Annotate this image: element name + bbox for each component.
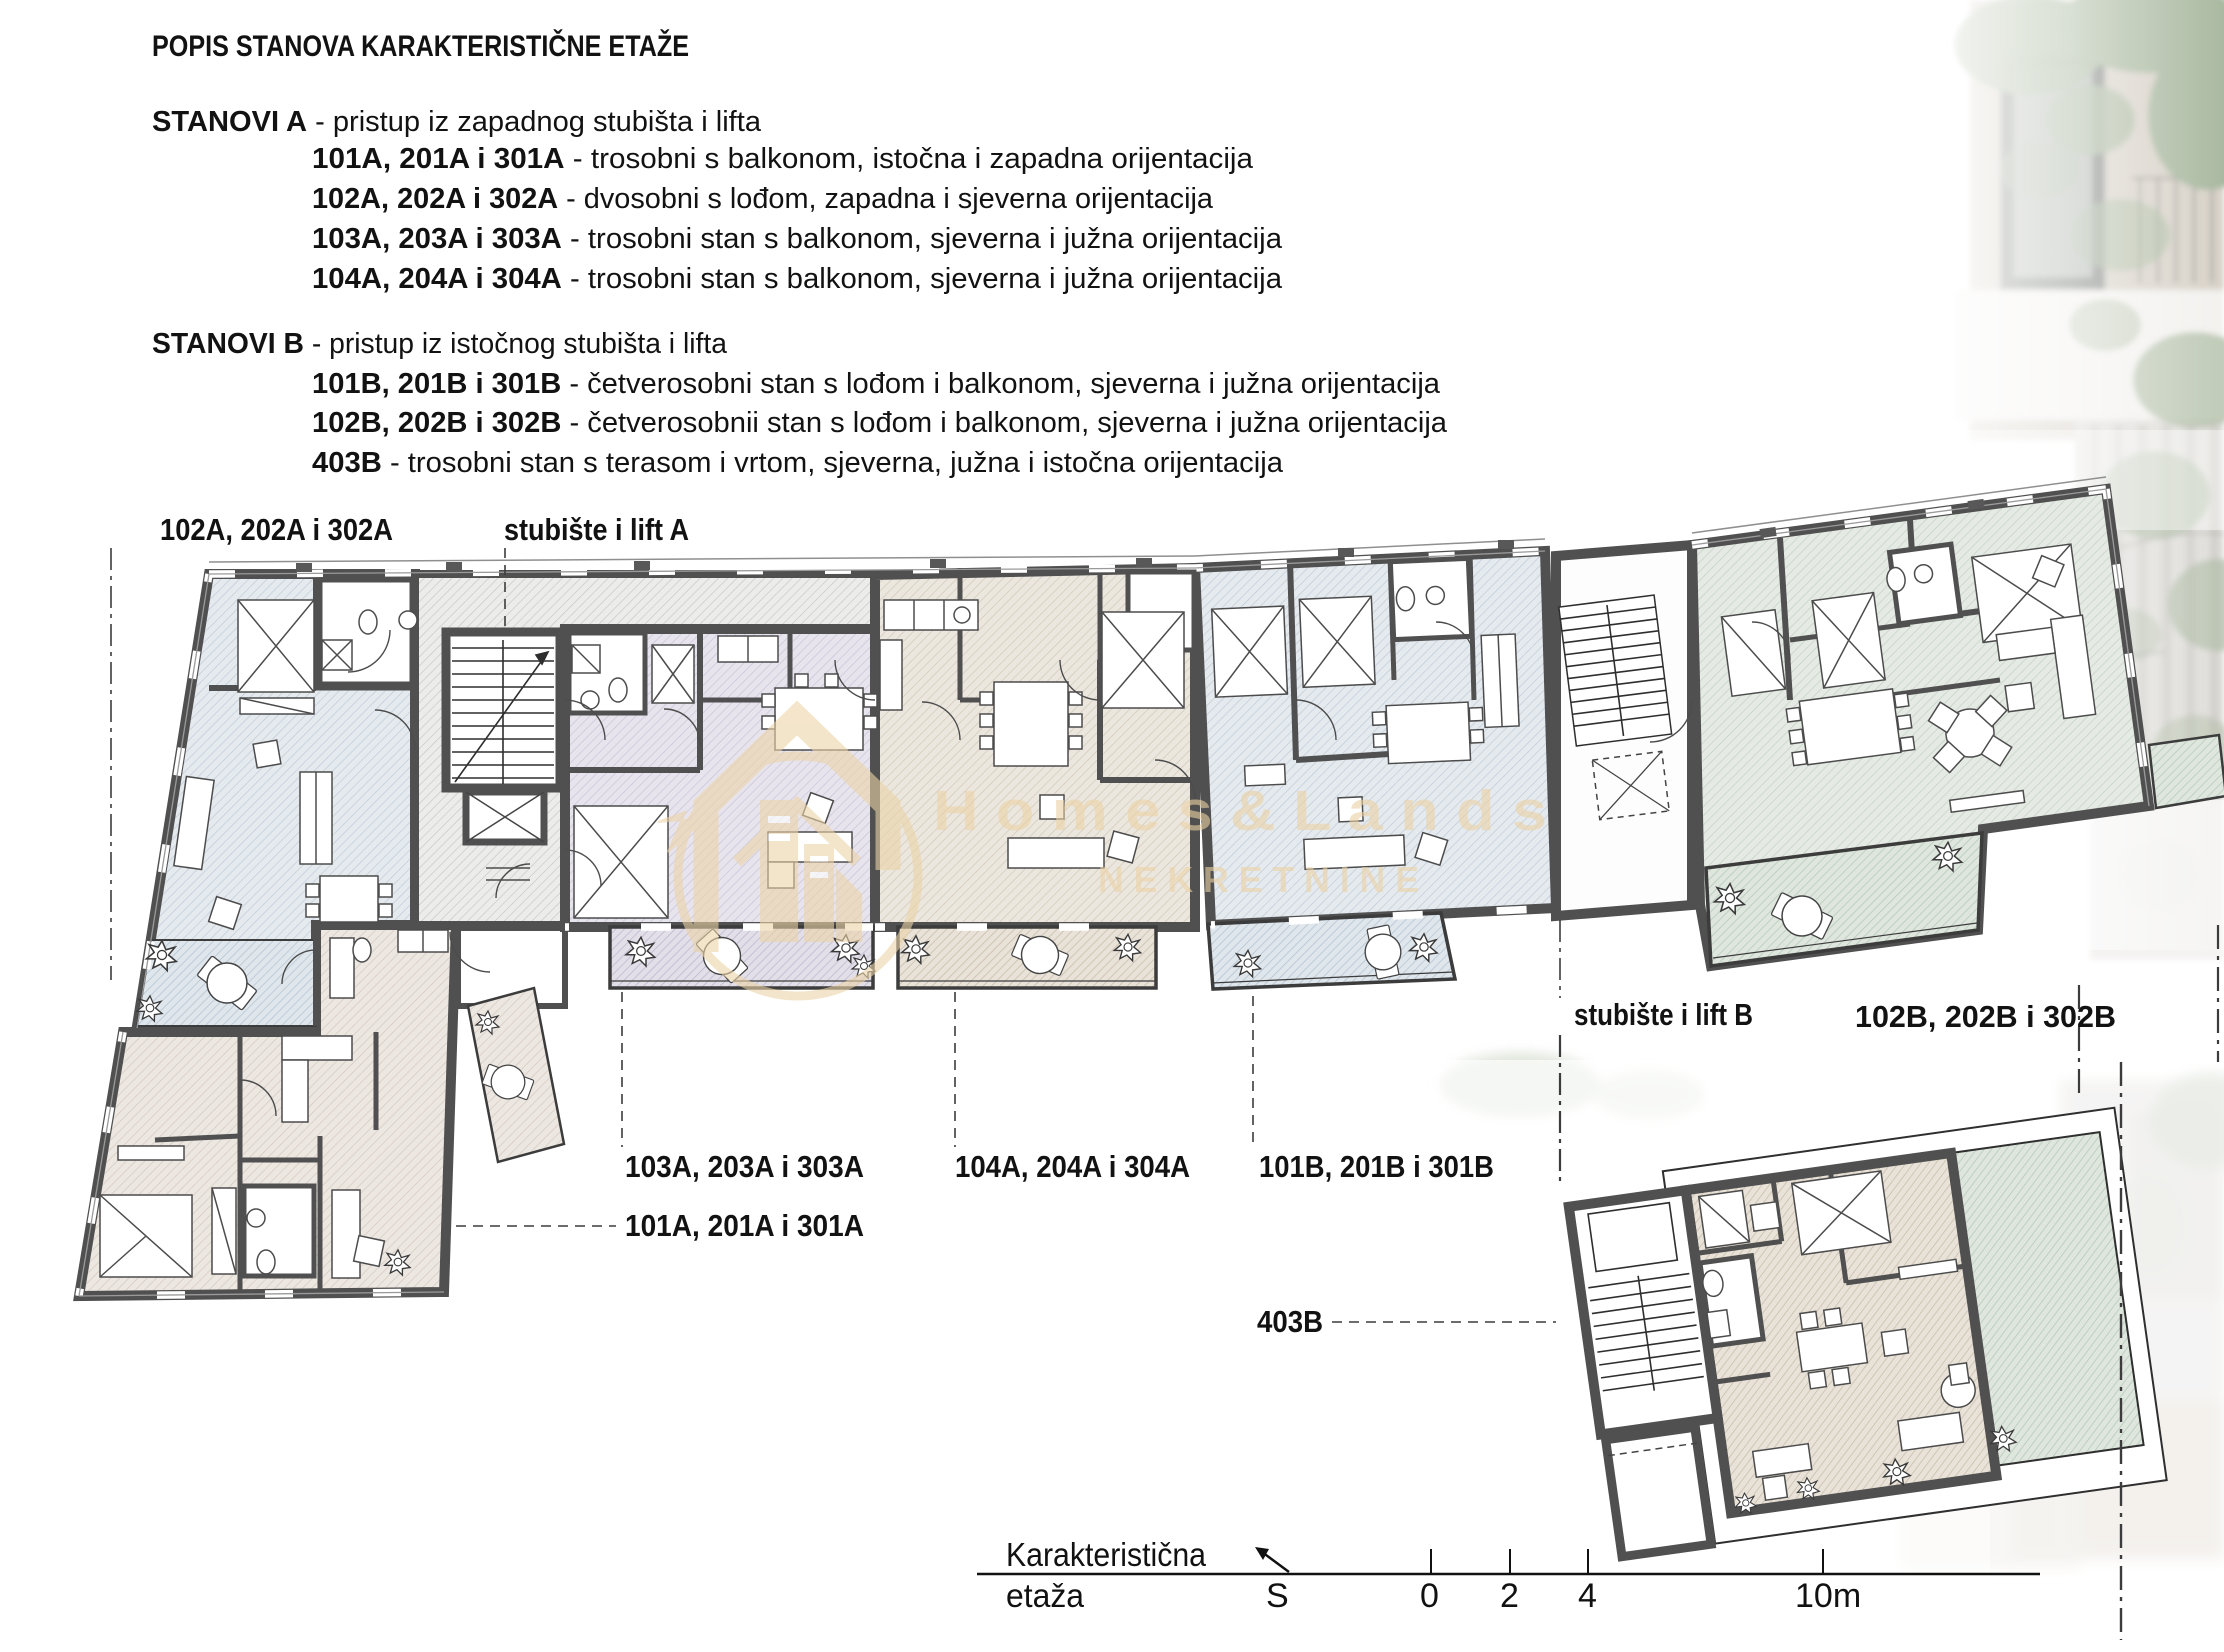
svg-text:POPIS STANOVA KARAKTERISTIČNE: POPIS STANOVA KARAKTERISTIČNE ETAŽE: [152, 29, 689, 63]
svg-text:101A, 201A i 301A: 101A, 201A i 301A: [625, 1208, 864, 1243]
svg-text:2: 2: [1500, 1577, 1519, 1615]
svg-text:S: S: [1266, 1577, 1289, 1615]
svg-text:10m: 10m: [1795, 1577, 1861, 1615]
svg-text:101A, 201A i 301A - trosobni s: 101A, 201A i 301A - trosobni s balkonom,…: [312, 143, 1254, 175]
svg-text:N E K R E T N I N E: N E K R E T N I N E: [1098, 859, 1419, 900]
svg-text:H o m e s & L a n d s: H o m e s & L a n d s: [933, 779, 1547, 843]
svg-text:102B, 202B i 302B - četverosob: 102B, 202B i 302B - četverosobnii stan s…: [312, 407, 1448, 439]
svg-text:stubište i lift B: stubište i lift B: [1574, 997, 1753, 1032]
svg-text:103A, 203A i 303A: 103A, 203A i 303A: [625, 1149, 864, 1184]
svg-text:403B: 403B: [1257, 1304, 1323, 1339]
svg-text:STANOVI A - pristup iz zapadno: STANOVI A - pristup iz zapadnog stubišta…: [152, 106, 762, 138]
svg-text:0: 0: [1420, 1577, 1439, 1615]
svg-text:etaža: etaža: [1006, 1577, 1085, 1614]
svg-text:stubište i lift A: stubište i lift A: [504, 512, 689, 547]
svg-text:101B, 201B i 301B - četverosob: 101B, 201B i 301B - četverosobni stan s …: [312, 368, 1441, 400]
svg-text:STANOVI B - pristup iz istočno: STANOVI B - pristup iz istočnog stubišta…: [152, 328, 728, 360]
svg-text:101B, 201B i 301B: 101B, 201B i 301B: [1259, 1149, 1494, 1184]
svg-text:Karakteristična: Karakteristična: [1006, 1536, 1207, 1573]
svg-text:104A, 204A i 304A: 104A, 204A i 304A: [955, 1149, 1190, 1184]
svg-text:102A, 202A i 302A: 102A, 202A i 302A: [160, 512, 393, 547]
svg-text:103A, 203A i 303A - trosobni s: 103A, 203A i 303A - trosobni stan s balk…: [312, 223, 1283, 255]
svg-text:102B, 202B i 302B: 102B, 202B i 302B: [1855, 999, 2116, 1034]
svg-text:104A, 204A i 304A - trosobni s: 104A, 204A i 304A - trosobni stan s balk…: [312, 263, 1283, 295]
svg-text:4: 4: [1578, 1577, 1597, 1615]
svg-text:403B - trosobni stan s terasom: 403B - trosobni stan s terasom i vrtom, …: [312, 447, 1284, 479]
svg-text:102A, 202A i 302A - dvosobni s: 102A, 202A i 302A - dvosobni s lođom, za…: [312, 183, 1214, 215]
